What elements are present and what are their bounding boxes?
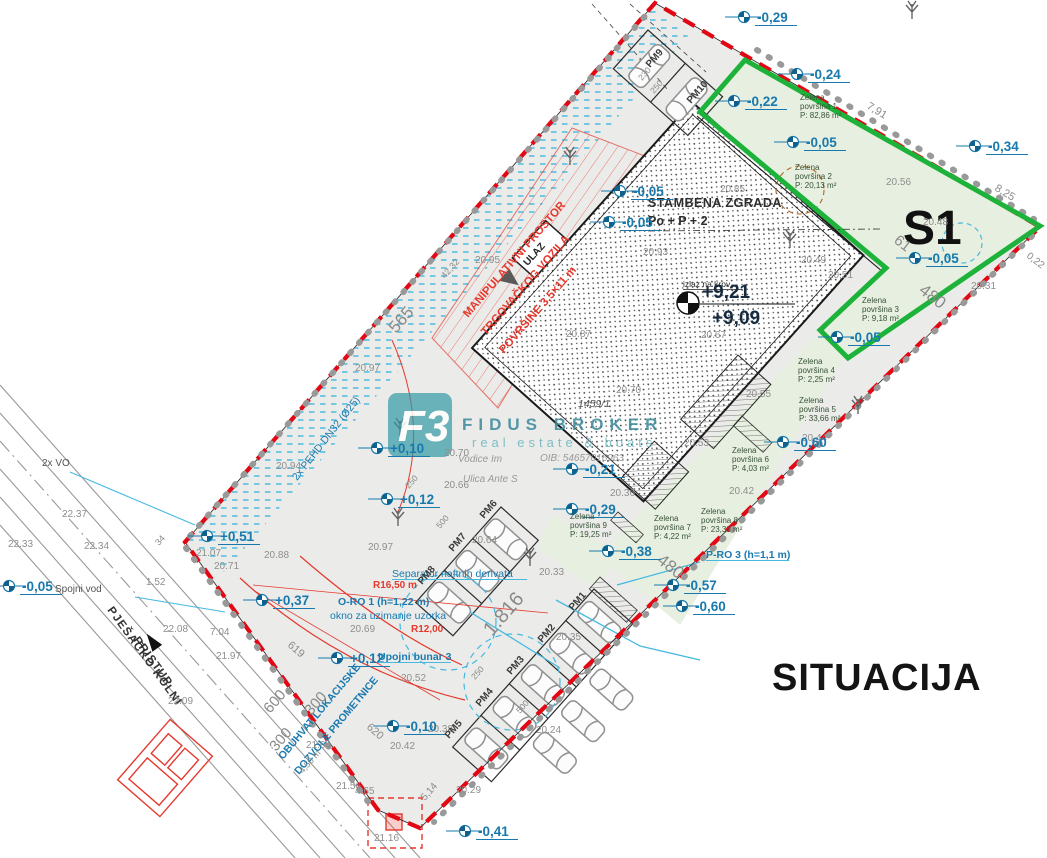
watermark-tagline: real estate & boats: [472, 435, 656, 450]
radius-label: R12,00: [411, 624, 444, 635]
elevation-value: -0,57: [686, 578, 717, 593]
spot-height: 21.07: [196, 548, 221, 559]
elevation-value: +0,12: [400, 492, 434, 507]
utility-label: okno za uzimanje uzorka: [330, 610, 446, 622]
spot-height: 20.88: [264, 550, 289, 561]
flag-quadrant: [975, 146, 981, 152]
roof-exit-label: izlaz na krov: [683, 279, 731, 289]
utility-label: O-RO 1 (h=1,22 m): [338, 596, 429, 608]
flag-quadrant: [744, 17, 750, 23]
elevation-value: -0,05: [622, 215, 653, 230]
spot-height: 20.35: [556, 632, 581, 643]
spot-height: 20.31: [971, 281, 996, 292]
spot-height: 1.52: [146, 577, 166, 588]
spot-height: 22.37: [62, 509, 87, 520]
spot-height: 20.70: [616, 385, 641, 396]
elevation-value: -0,05: [806, 135, 837, 150]
dimension-label: 34: [153, 533, 167, 547]
page-title: SITUACIJA: [772, 657, 982, 699]
elevation-marker: -0,34: [956, 139, 1028, 155]
elevation-value: -0,05: [633, 184, 664, 199]
elevation-value: -0,38: [621, 544, 652, 559]
spot-height: 20.48: [923, 217, 948, 228]
spot-height: 4.65: [355, 786, 375, 797]
flag-quadrant: [739, 12, 745, 18]
spot-height: 20.42: [729, 486, 754, 497]
dimension-label: 7,91: [864, 100, 889, 121]
spot-height: 20.53: [684, 438, 709, 449]
elevation-value: +0,51: [220, 529, 255, 544]
elevation-value: -0,29: [757, 10, 788, 25]
utility-label: Upojni bunar 3: [378, 651, 452, 663]
spot-height: 21.16: [374, 833, 399, 844]
green-area-label: Zelenapovršina 1P: 82,86 m²: [800, 93, 842, 120]
elevation-value: +0,37: [275, 593, 309, 608]
spot-height: 21.97: [216, 651, 241, 662]
elevation-value: +0,10: [390, 441, 424, 456]
building-floors: Po + P + 2: [648, 214, 708, 228]
duct-label: 2x VO: [42, 458, 70, 469]
spot-height: 20.93: [643, 247, 668, 258]
spot-height: 20.33: [539, 567, 564, 578]
radius-label: R16,50 m: [373, 580, 417, 591]
spot-height: 20.87: [566, 329, 591, 340]
flag-quadrant: [4, 581, 10, 587]
spot-height: 20.85: [720, 184, 745, 195]
elevation-value: -0,05: [22, 579, 53, 594]
elevation-value: -0,05: [928, 251, 959, 266]
spot-height: 21.64: [306, 740, 331, 751]
spot-height: 20.97: [355, 363, 380, 374]
elevation-value: -0,60: [695, 599, 726, 614]
spot-height: 20.95: [475, 255, 500, 266]
spot-height: 20.64: [472, 535, 497, 546]
spot-height: 20.71: [214, 561, 239, 572]
spot-height: 22.33: [8, 539, 33, 550]
spot-height: 20.66: [444, 480, 469, 491]
building-elev-floor: +9,09: [712, 308, 760, 329]
spot-height: 22.09: [168, 696, 193, 707]
s1-zone-label: S1: [903, 202, 962, 255]
watermark-address2: Ulica Ante S: [463, 474, 518, 485]
elevation-value: -0,22: [747, 94, 778, 109]
elevation-value: -0,34: [988, 139, 1019, 154]
tree-icon: [906, 1, 918, 19]
spot-height: 20.67: [701, 330, 726, 341]
spot-height: 22.08: [163, 624, 188, 635]
elevation-value: -0,21: [585, 462, 616, 477]
utility-label: P-RO 3 (h=1,1 m): [706, 549, 790, 561]
spot-height: 20.69: [350, 624, 375, 635]
spot-height: 20.55: [746, 389, 771, 400]
flag-quadrant: [970, 141, 976, 147]
spot-height: 20.42: [390, 741, 415, 752]
spot-height: 20.36: [610, 488, 635, 499]
elevation-value: -0,24: [810, 67, 841, 82]
elevation-value: -0,60: [796, 435, 827, 450]
elevation-value: -0,05: [850, 330, 881, 345]
spot-height: 20.70: [444, 448, 469, 459]
spot-height: 20.97: [368, 542, 393, 553]
watermark-brand: FIDUS BROKER: [462, 415, 663, 434]
spot-height: 20.29: [456, 785, 481, 796]
flag-quadrant: [460, 826, 466, 832]
spot-height: 20.49: [801, 255, 826, 266]
spojni-vod-label: Spojni vod: [55, 584, 102, 595]
building-name: STAMBENA ZGRADA: [648, 196, 782, 210]
dimension-label: 600: [260, 687, 289, 717]
spot-height: 20.51: [828, 270, 853, 281]
elevation-marker: -0,41: [446, 824, 518, 840]
elevation-value: -0,10: [406, 719, 437, 734]
spot-height: 20.24: [536, 725, 561, 736]
site-plan-drawing: ULAZ: [0, 0, 1047, 858]
parcel-number: 1459/1: [578, 398, 610, 410]
spot-height: 22.34: [84, 541, 109, 552]
spot-height: 20.52: [401, 673, 426, 684]
flag-quadrant: [465, 831, 471, 837]
spot-height: 20.56: [886, 177, 911, 188]
site-plan-page: ULAZ: [0, 0, 1047, 858]
utility-label: Separator naftnih derivata: [392, 568, 513, 580]
dimension-label: 0,22: [1024, 251, 1046, 272]
elevation-marker: -0,29: [725, 10, 797, 26]
elevation-marker: -0,05: [0, 579, 62, 595]
spot-height: 7.04: [210, 627, 230, 638]
flag-quadrant: [9, 586, 15, 592]
elevation-value: -0,41: [478, 824, 509, 839]
